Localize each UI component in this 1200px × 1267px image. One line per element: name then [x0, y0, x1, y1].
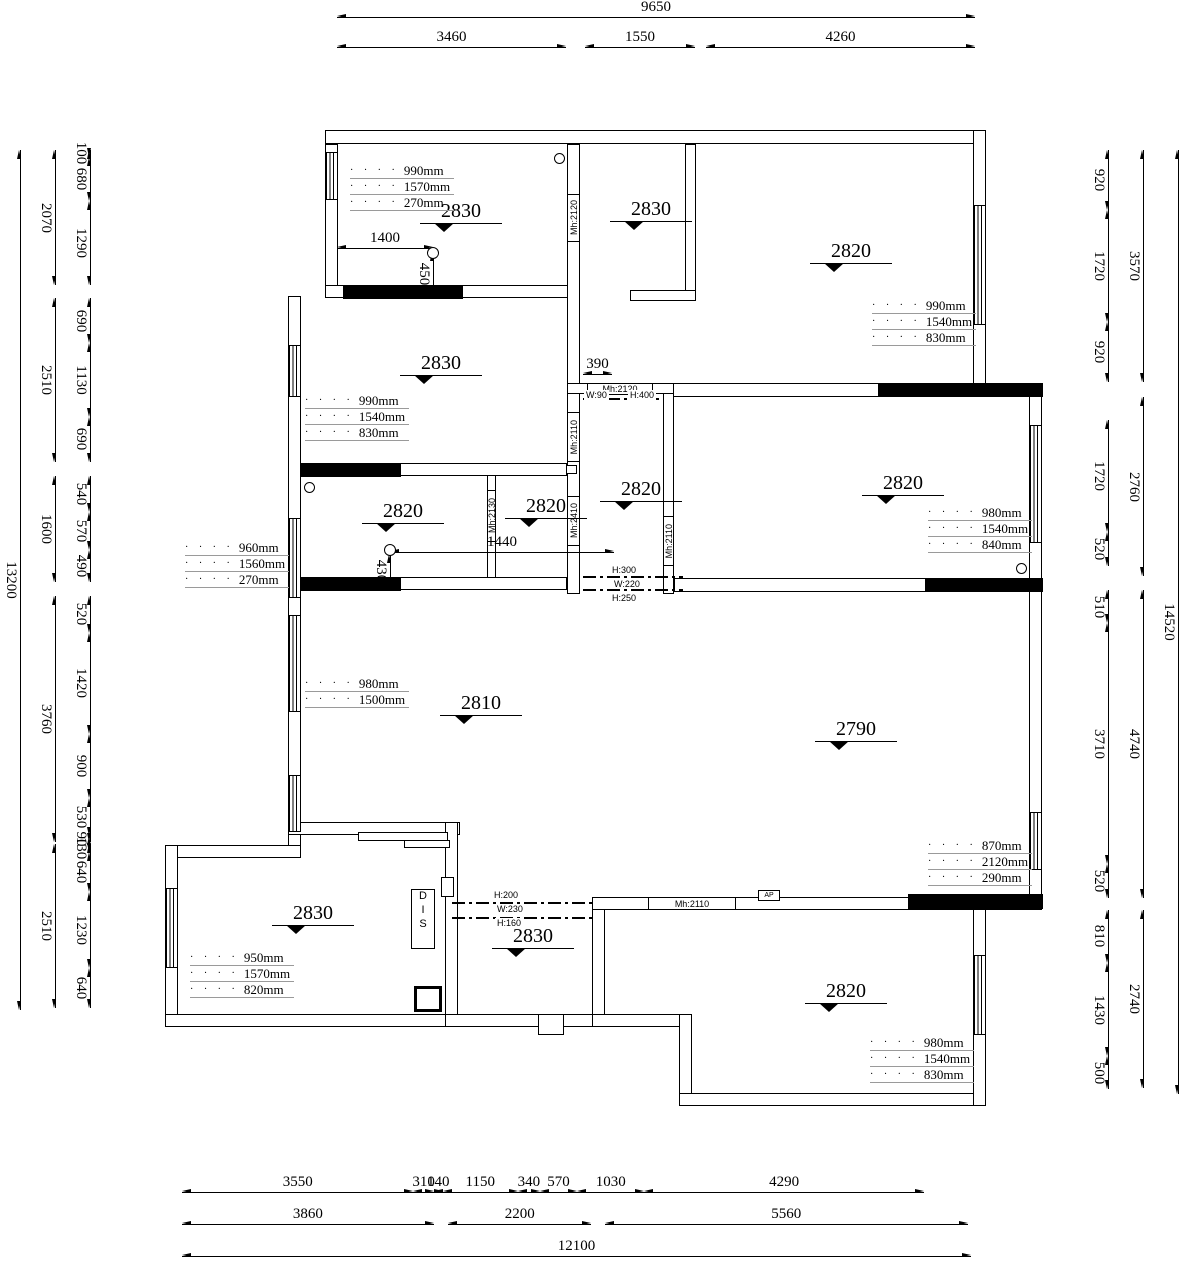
window-annotation-text: 830mm — [926, 330, 966, 346]
inline-dim — [390, 552, 614, 553]
dim-label: 920 — [1090, 169, 1107, 192]
bottom-dim — [443, 1192, 518, 1193]
leader-dots-icon: · · · · — [190, 984, 239, 995]
door-label-text: Mh:2130 — [487, 498, 496, 533]
window-hatch — [288, 775, 301, 832]
dis-label: DIS — [417, 890, 429, 932]
dim-arrowhead — [52, 573, 56, 582]
dim-line — [585, 47, 695, 48]
ceiling-height-value: 2820 — [505, 495, 587, 518]
elevation-marker: 2820 — [600, 478, 682, 512]
beam-size-label: H:250 — [610, 593, 638, 603]
window-annotation-row: · · · ·1540mm — [305, 409, 409, 425]
dim-label: 1420 — [72, 668, 89, 698]
window-annotation: · · · ·990mm· · · ·1570mm· · · ·270mm — [350, 163, 454, 211]
window-annotation-row: · · · ·840mm — [928, 537, 1032, 553]
dim-arrowhead — [87, 999, 91, 1008]
dim-arrowhead — [1105, 150, 1109, 159]
dim-arrowhead — [1105, 201, 1109, 210]
elevation-triangle-icon — [434, 223, 454, 232]
elevation-triangle-icon — [624, 221, 644, 230]
window-annotation-text: 1570mm — [244, 966, 290, 982]
dim-arrowhead — [52, 833, 56, 842]
window-annotation-row: · · · ·1540mm — [872, 314, 976, 330]
window-annotation-row: · · · ·980mm — [870, 1035, 974, 1051]
dim-label: 3460 — [437, 29, 467, 46]
dim-arrowhead — [686, 44, 695, 48]
window-annotation-row: · · · ·990mm — [305, 393, 409, 409]
window-annotation: · · · ·960mm· · · ·1560mm· · · ·270mm — [185, 540, 289, 588]
bottom-dim — [182, 1224, 434, 1225]
right-part-dim — [1108, 623, 1109, 864]
inline-dim — [337, 248, 433, 249]
beam-size-label: H:200 — [492, 890, 520, 900]
dim-arrowhead — [443, 1189, 452, 1193]
dim-label: 3860 — [293, 1206, 323, 1223]
dim-arrowhead — [87, 201, 91, 210]
window-annotation-row: · · · ·270mm — [350, 195, 454, 211]
ceiling-height-value: 2810 — [440, 692, 522, 715]
window-annotation-text: 1540mm — [926, 314, 972, 330]
elevation-line — [420, 223, 502, 224]
dim-line — [337, 47, 566, 48]
ceiling-height-value: 2820 — [600, 478, 682, 501]
elevation-line — [492, 948, 574, 949]
left-group-dim — [55, 596, 56, 842]
dim-label: 1150 — [466, 1174, 495, 1191]
dim-label: 450 — [415, 263, 432, 286]
dim-label: 2200 — [505, 1206, 535, 1223]
dim-arrowhead — [635, 1189, 644, 1193]
dim-label: 1230 — [72, 915, 89, 945]
beam-fill — [908, 894, 1043, 909]
dim-label: 810 — [1090, 925, 1107, 948]
left-overall-dim — [20, 150, 21, 1010]
window-annotation-row: · · · ·830mm — [872, 330, 976, 346]
ap-label: AP — [764, 892, 773, 899]
wall — [325, 130, 986, 144]
fixture-circle-icon — [427, 247, 439, 259]
leader-dots-icon: · · · · — [305, 427, 354, 438]
window-annotation-text: 990mm — [404, 163, 444, 179]
dim-label: 570 — [547, 1174, 570, 1191]
left-part-dim — [90, 201, 91, 285]
dim-label: 2740 — [1125, 984, 1142, 1014]
dim-arrowhead — [557, 44, 566, 48]
window-annotation-row: · · · ·820mm — [190, 982, 294, 998]
elevation-line — [805, 1003, 887, 1004]
elevation-line — [440, 715, 522, 716]
window-annotation-text: 950mm — [244, 950, 284, 966]
dim-arrowhead — [52, 999, 56, 1008]
dim-arrowhead — [87, 192, 91, 201]
elevation-line — [610, 221, 692, 222]
window-annotation-row: · · · ·960mm — [185, 540, 289, 556]
fixture-circle-icon — [554, 153, 565, 164]
leader-dots-icon: · · · · — [928, 523, 977, 534]
elevation-triangle-icon — [519, 518, 539, 527]
dim-arrowhead — [1140, 910, 1144, 919]
bottom-dim — [605, 1224, 968, 1225]
dim-label: 3710 — [1090, 729, 1107, 759]
dim-arrowhead — [582, 1221, 591, 1225]
dim-arrowhead — [52, 276, 56, 285]
leader-dots-icon: · · · · — [928, 840, 977, 851]
window-annotation-text: 1540mm — [982, 521, 1028, 537]
dim-label: 920 — [1090, 341, 1107, 364]
wall — [165, 1014, 459, 1027]
dim-arrowhead — [87, 633, 91, 642]
window-annotation-text: 870mm — [982, 838, 1022, 854]
dim-arrowhead — [1105, 313, 1109, 322]
dim-arrowhead — [87, 725, 91, 734]
dim-arrowhead — [87, 417, 91, 426]
ap-box: AP — [758, 890, 780, 901]
left-part-dim — [90, 633, 91, 734]
dim-arrowhead — [966, 14, 975, 18]
dim-label: 500 — [1090, 1061, 1107, 1084]
elevation-marker: 2810 — [440, 692, 522, 726]
elevation-line — [815, 741, 897, 742]
dim-label: 3550 — [283, 1174, 313, 1191]
window-hatch — [973, 955, 986, 1035]
ceiling-height-value: 2830 — [492, 925, 574, 948]
dim-arrowhead — [1140, 373, 1144, 382]
elevation-triangle-icon — [376, 523, 396, 532]
ceiling-height-value: 2820 — [362, 500, 444, 523]
elevation-marker: 2820 — [862, 472, 944, 506]
leader-dots-icon: · · · · — [305, 395, 354, 406]
dim-arrowhead — [1105, 373, 1109, 382]
dim-label: 340 — [518, 1174, 541, 1191]
dim-label: 1130 — [72, 365, 89, 394]
dim-arrowhead — [87, 453, 91, 462]
window-annotation: · · · ·990mm· · · ·1540mm· · · ·830mm — [872, 298, 976, 346]
bottom-overall-dim — [182, 1256, 971, 1257]
leader-dots-icon: · · · · — [305, 694, 354, 705]
leader-dots-icon: · · · · — [870, 1037, 919, 1048]
window-annotation-row: · · · ·1540mm — [870, 1051, 974, 1067]
right-group-dim — [1143, 590, 1144, 898]
dim-arrowhead — [644, 1189, 653, 1193]
window-annotation-row: · · · ·980mm — [305, 676, 409, 692]
leader-dots-icon: · · · · — [190, 952, 239, 963]
beam-fill — [343, 285, 463, 299]
dim-arrowhead — [1175, 150, 1179, 159]
dim-label: 690 — [72, 428, 89, 451]
dim-arrowhead — [605, 549, 614, 553]
leader-dots-icon: · · · · — [928, 539, 977, 550]
leader-dots-icon: · · · · — [870, 1069, 919, 1080]
leader-dots-icon: · · · · — [872, 316, 921, 327]
dim-label: 3570 — [1125, 251, 1142, 281]
dim-label: 1600 — [37, 514, 54, 544]
dim-arrowhead — [1105, 954, 1109, 963]
window-annotation-text: 980mm — [924, 1035, 964, 1051]
dim-arrowhead — [706, 44, 715, 48]
elevation-triangle-icon — [819, 1003, 839, 1012]
fixture-circle-icon — [384, 544, 396, 556]
dim-label: 5560 — [771, 1206, 801, 1223]
bottom-dim — [448, 1224, 591, 1225]
leader-dots-icon: · · · · — [872, 332, 921, 343]
leader-dots-icon: · · · · — [190, 968, 239, 979]
window-annotation-text: 820mm — [244, 982, 284, 998]
wall — [679, 1093, 986, 1106]
beam-size-label: H:300 — [610, 565, 638, 575]
window-annotation: · · · ·870mm· · · ·2120mm· · · ·290mm — [928, 838, 1032, 886]
window-annotation-text: 990mm — [926, 298, 966, 314]
dim-label: 390 — [586, 356, 609, 373]
right-overall-dim — [1178, 150, 1179, 1094]
ceiling-height-value: 2790 — [815, 718, 897, 741]
leader-dots-icon: · · · · — [928, 872, 977, 883]
window-annotation-row: · · · ·270mm — [185, 572, 289, 588]
floor-plan-canvas: 9650346015504260355031014011503405701030… — [0, 0, 1200, 1267]
dim-arrowhead — [1105, 910, 1109, 919]
dim-arrowhead — [87, 734, 91, 743]
window-annotation-row: · · · ·870mm — [928, 838, 1032, 854]
wall — [538, 1014, 564, 1035]
dim-arrowhead — [87, 276, 91, 285]
right-group-dim — [1143, 150, 1144, 382]
dim-label: 900 — [72, 755, 89, 778]
dim-arrowhead — [585, 44, 594, 48]
ceiling-height-value: 2820 — [810, 240, 892, 263]
ceiling-height-value: 2820 — [805, 980, 887, 1003]
elevation-marker: 2820 — [805, 980, 887, 1014]
elevation-triangle-icon — [454, 715, 474, 724]
beam-size-label: H:400 — [628, 390, 656, 400]
right-part-dim — [1108, 963, 1109, 1056]
beam-dashdot-line — [583, 576, 683, 578]
dim-arrowhead — [337, 245, 346, 249]
window-hatch — [288, 345, 301, 397]
dim-label: 14520 — [1160, 603, 1177, 641]
left-group-dim — [55, 844, 56, 1008]
beam-fill — [878, 383, 1043, 397]
dim-arrowhead — [448, 1221, 457, 1225]
ceiling-height-value: 2830 — [610, 198, 692, 221]
beam-size-label: H:160 — [495, 918, 523, 928]
window-annotation-text: 270mm — [404, 195, 444, 211]
beam-size-label: W:220 — [612, 579, 642, 589]
right-part-dim — [1108, 420, 1109, 532]
dim-label: 510 — [1090, 595, 1107, 618]
elevation-marker: 2790 — [815, 718, 897, 752]
dim-arrowhead — [1140, 1079, 1144, 1088]
right-group-dim — [1143, 910, 1144, 1088]
dim-arrowhead — [1105, 210, 1109, 219]
leader-dots-icon: · · · · — [305, 411, 354, 422]
door-label: Mh:2120 — [567, 194, 580, 242]
dim-arrowhead — [52, 596, 56, 605]
dim-arrowhead — [1105, 1047, 1109, 1056]
elevation-marker: 2830 — [272, 902, 354, 936]
dim-arrowhead — [1140, 567, 1144, 576]
dim-arrowhead — [182, 1189, 191, 1193]
window-annotation-row: · · · ·980mm — [928, 505, 1032, 521]
window-annotation-text: 290mm — [982, 870, 1022, 886]
dim-arrowhead — [1140, 397, 1144, 406]
dim-label: 2510 — [37, 911, 54, 941]
dim-label: 2510 — [37, 365, 54, 395]
dim-arrowhead — [962, 1253, 971, 1257]
door-label: Mh:2110 — [663, 516, 674, 566]
dim-arrowhead — [1105, 322, 1109, 331]
door-label-text: Mh:2110 — [664, 524, 674, 558]
elevation-triangle-icon — [506, 948, 526, 957]
elevation-line — [862, 495, 944, 496]
door-label-text: Mh:2120 — [569, 200, 579, 235]
beam-size-label: W:230 — [495, 904, 525, 914]
elevation-marker: 2830 — [492, 925, 574, 959]
dim-arrowhead — [182, 1253, 191, 1257]
window-annotation-text: 960mm — [239, 540, 279, 556]
left-group-dim — [55, 298, 56, 462]
window-annotation-text: 1570mm — [404, 179, 450, 195]
dim-arrowhead — [1175, 1085, 1179, 1094]
window-annotation-text: 840mm — [982, 537, 1022, 553]
ceiling-height-value: 2830 — [400, 352, 482, 375]
left-part-dim — [90, 892, 91, 968]
dim-arrowhead — [52, 298, 56, 307]
dim-arrowhead — [425, 1221, 434, 1225]
window-hatch — [165, 888, 178, 968]
ceiling-height-value: 2830 — [272, 902, 354, 925]
window-annotation-row: · · · ·290mm — [928, 870, 1032, 886]
window-annotation-text: 830mm — [359, 425, 399, 441]
door-label-text: Mh:2110 — [569, 420, 579, 454]
dim-label: 540 — [72, 483, 89, 506]
dim-label: 1430 — [1090, 995, 1107, 1025]
dim-arrowhead — [1105, 523, 1109, 532]
dim-arrowhead — [87, 883, 91, 892]
window-annotation-text: 1540mm — [924, 1051, 970, 1067]
fixture-circle-icon — [1016, 563, 1027, 574]
dim-arrowhead — [87, 298, 91, 307]
dim-label: 9650 — [641, 0, 671, 16]
dim-arrowhead — [52, 150, 56, 159]
elevation-triangle-icon — [824, 263, 844, 272]
dim-label: 1440 — [487, 534, 517, 551]
dim-label: 680 — [72, 167, 89, 190]
window-annotation-row: · · · ·1570mm — [350, 179, 454, 195]
wall — [445, 1014, 606, 1027]
floor-drain-box — [414, 986, 442, 1012]
leader-dots-icon: · · · · — [350, 181, 399, 192]
dim-label: 12100 — [558, 1238, 596, 1255]
right-part-dim — [1108, 210, 1109, 322]
dim-label: 1720 — [1090, 251, 1107, 281]
elevation-line — [272, 925, 354, 926]
dim-label: 430 — [372, 560, 389, 583]
dim-label: 1290 — [72, 228, 89, 258]
dim-label: 690 — [72, 309, 89, 332]
dim-arrowhead — [577, 1189, 586, 1193]
elevation-triangle-icon — [414, 375, 434, 384]
elevation-line — [810, 263, 892, 264]
ceiling-height-value: 2820 — [862, 472, 944, 495]
window-annotation-row: · · · ·830mm — [305, 425, 409, 441]
dim-arrowhead — [87, 852, 91, 861]
elevation-line — [400, 375, 482, 376]
window-annotation: · · · ·980mm· · · ·1500mm — [305, 676, 409, 708]
elevation-triangle-icon — [614, 501, 634, 510]
dim-arrowhead — [87, 892, 91, 901]
wall — [630, 290, 696, 301]
dim-label: 520 — [1090, 538, 1107, 561]
beam-dashdot-line — [583, 589, 683, 591]
leader-dots-icon: · · · · — [350, 197, 399, 208]
dim-arrowhead — [87, 157, 91, 166]
elevation-line — [362, 523, 444, 524]
fixture-circle-icon — [304, 482, 315, 493]
dim-label: 2760 — [1125, 472, 1142, 502]
wall — [592, 1014, 692, 1027]
left-group-dim — [55, 476, 56, 582]
left-group-dim — [55, 150, 56, 285]
window-annotation-text: 980mm — [982, 505, 1022, 521]
dim-arrowhead — [17, 1001, 21, 1010]
wall — [165, 845, 301, 858]
dim-line — [706, 47, 975, 48]
window-hatch — [325, 152, 338, 200]
dim-label: 520 — [1090, 870, 1107, 893]
dim-arrowhead — [430, 287, 434, 296]
dim-label: 3760 — [37, 704, 54, 734]
leader-dots-icon: · · · · — [185, 574, 234, 585]
counter-fixture — [404, 840, 450, 848]
dim-arrowhead — [1140, 150, 1144, 159]
dis-shaft-box: DIS — [411, 889, 435, 949]
beam-fill — [925, 578, 1043, 592]
window-annotation-text: 990mm — [359, 393, 399, 409]
dim-label: 520 — [72, 603, 89, 626]
elevation-triangle-icon — [876, 495, 896, 504]
window-annotation-row: · · · ·1570mm — [190, 966, 294, 982]
window-annotation-text: 1560mm — [239, 556, 285, 572]
window-annotation-row: · · · ·2120mm — [928, 854, 1032, 870]
dim-arrowhead — [52, 453, 56, 462]
dim-arrowhead — [1105, 963, 1109, 972]
leader-dots-icon: · · · · — [350, 165, 399, 176]
window-annotation-text: 1540mm — [359, 409, 405, 425]
bottom-dim — [182, 1192, 413, 1193]
elevation-marker: 2820 — [810, 240, 892, 274]
dim-arrowhead — [52, 476, 56, 485]
elevation-triangle-icon — [829, 741, 849, 750]
dim-arrowhead — [17, 150, 21, 159]
dim-label: 1550 — [625, 29, 655, 46]
leader-dots-icon: · · · · — [928, 507, 977, 518]
window-annotation-row: · · · ·1560mm — [185, 556, 289, 572]
window-annotation-row: · · · ·990mm — [350, 163, 454, 179]
beam-fill — [301, 463, 401, 477]
dim-label: 1720 — [1090, 461, 1107, 491]
dim-arrowhead — [605, 1221, 614, 1225]
dim-label: 4740 — [1125, 729, 1142, 759]
window-annotation-text: 1500mm — [359, 692, 405, 708]
dim-arrowhead — [1105, 420, 1109, 429]
dim-arrowhead — [1105, 623, 1109, 632]
dim-label: 570 — [72, 519, 89, 542]
dim-label: 490 — [72, 555, 89, 578]
dim-label: 640 — [72, 861, 89, 884]
dim-arrowhead — [959, 1221, 968, 1225]
window-annotation: · · · ·980mm· · · ·1540mm· · · ·830mm — [870, 1035, 974, 1083]
left-part-dim — [90, 343, 91, 417]
